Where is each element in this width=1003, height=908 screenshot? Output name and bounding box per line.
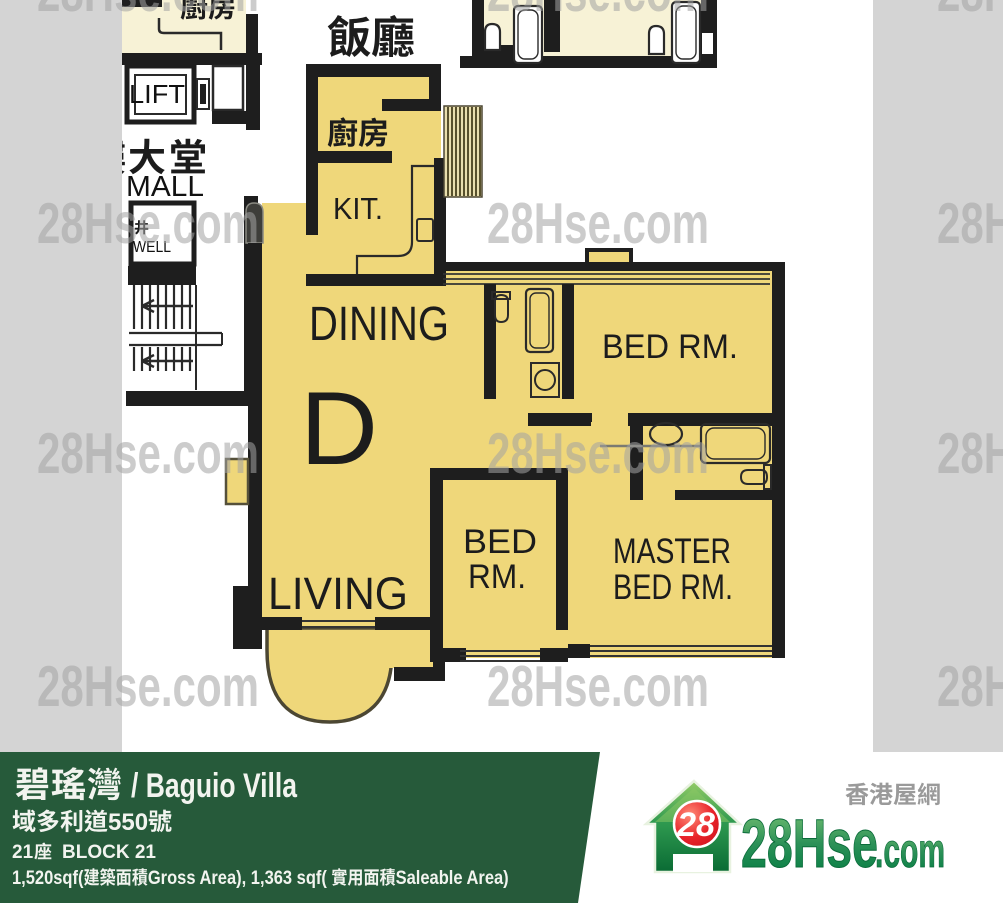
svg-text:28Hse.com: 28Hse.com <box>937 653 1003 718</box>
svg-text:28Hse.com: 28Hse.com <box>937 190 1003 255</box>
svg-text:28Hse.com: 28Hse.com <box>37 0 259 24</box>
svg-text:28: 28 <box>676 806 715 844</box>
svg-text:28Hse.com: 28Hse.com <box>937 0 1003 24</box>
svg-text:KIT.: KIT. <box>333 191 383 226</box>
svg-text:Gross Area), 1,363 sqf(: Gross Area), 1,363 sqf( <box>148 867 327 888</box>
svg-text:550: 550 <box>108 809 148 836</box>
svg-text:28Hse.com: 28Hse.com <box>37 190 259 255</box>
svg-text:1,520sqf(: 1,520sqf( <box>12 867 84 888</box>
svg-text:28Hse.com: 28Hse.com <box>37 653 259 718</box>
svg-text:BLOCK 21: BLOCK 21 <box>62 842 156 863</box>
svg-text:LIVING: LIVING <box>268 568 408 619</box>
svg-text:LIFT: LIFT <box>129 79 185 109</box>
svg-text:28Hse.com: 28Hse.com <box>487 190 709 255</box>
svg-text:BED RM.: BED RM. <box>613 568 733 607</box>
svg-text:D: D <box>300 371 378 487</box>
svg-text:RM.: RM. <box>468 558 526 596</box>
svg-text:BED: BED <box>463 523 537 561</box>
svg-text:MASTER: MASTER <box>613 532 731 571</box>
svg-text:BED RM.: BED RM. <box>602 328 738 366</box>
svg-text:28Hse.com: 28Hse.com <box>37 420 259 485</box>
svg-text:28Hse.com: 28Hse.com <box>487 420 709 485</box>
svg-text:28Hse.com: 28Hse.com <box>487 653 709 718</box>
svg-text:21: 21 <box>12 842 34 863</box>
svg-text:Saleable Area): Saleable Area) <box>396 867 509 888</box>
svg-text:28Hse.com: 28Hse.com <box>937 420 1003 485</box>
svg-text:DINING: DINING <box>309 298 449 351</box>
svg-text:/ Baguio Villa: / Baguio Villa <box>131 767 298 805</box>
svg-text:28Hse.com: 28Hse.com <box>487 0 709 24</box>
svg-text:28Hse: 28Hse <box>741 805 878 882</box>
svg-text:.com: .com <box>875 825 945 878</box>
